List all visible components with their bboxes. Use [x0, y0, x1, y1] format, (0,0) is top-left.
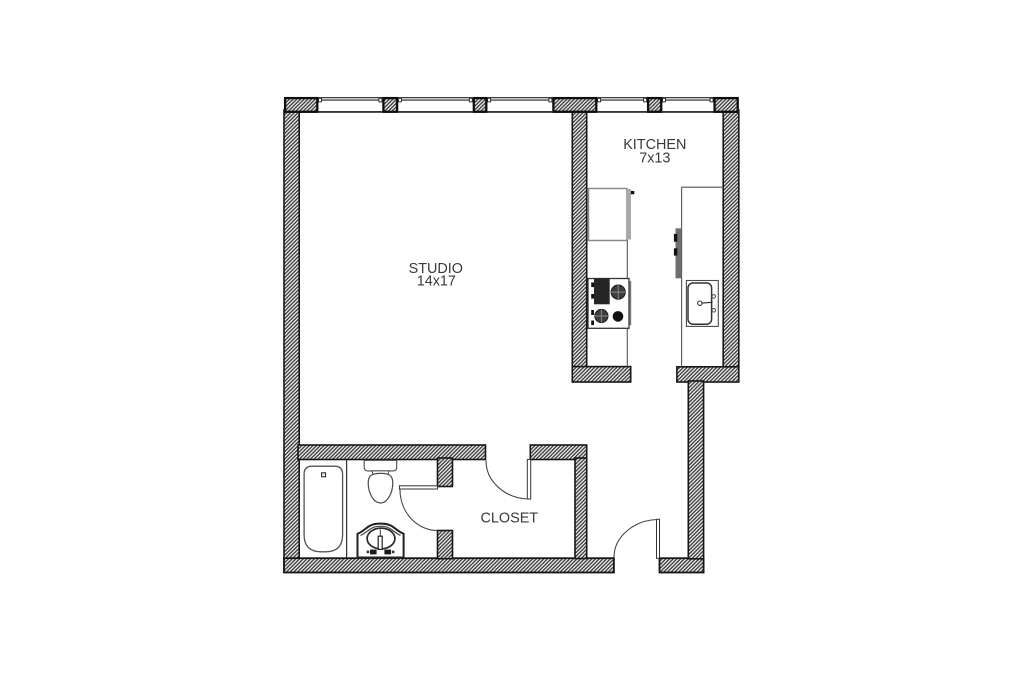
svg-text:CLOSET: CLOSET [481, 511, 539, 527]
svg-text:7x13: 7x13 [639, 150, 670, 166]
svg-text:14x17: 14x17 [417, 274, 456, 290]
